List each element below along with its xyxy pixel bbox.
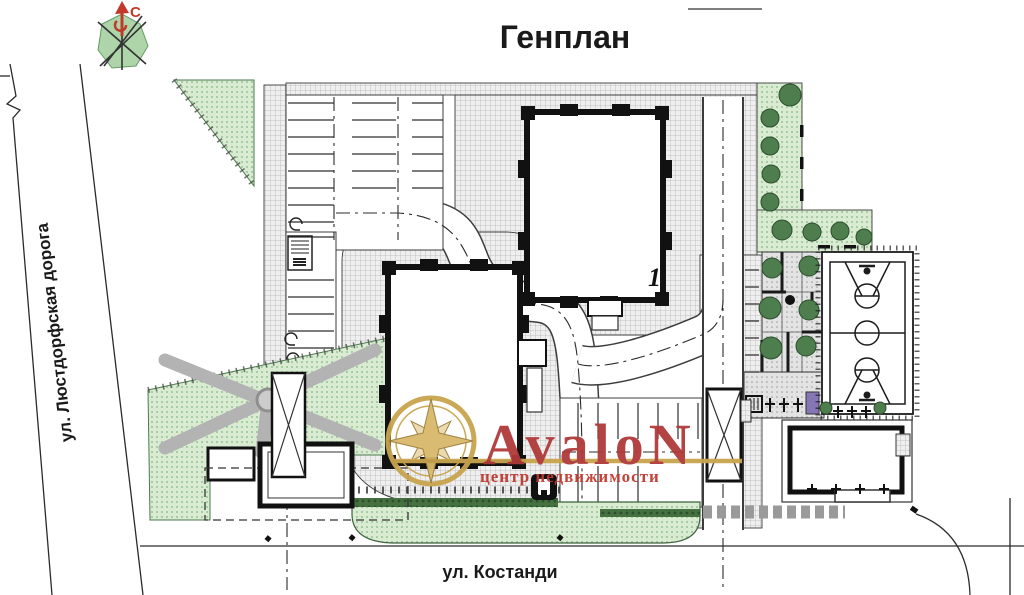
building-1: 1 (518, 104, 672, 330)
road-right-edge (80, 64, 143, 595)
building-1-number: 1 (648, 263, 661, 292)
ramp-structure-west (272, 373, 305, 477)
bush (820, 402, 832, 414)
street-label-left: ул. Люстдорфская дорога (33, 222, 77, 444)
brand-tagline: центр недвижимости (480, 467, 660, 486)
entrance-canopy (592, 316, 618, 330)
north-label: С (130, 4, 141, 21)
basketball-court (818, 248, 917, 418)
boulevard-green (757, 83, 872, 252)
small-building-a (208, 448, 254, 480)
hedge-row (352, 498, 558, 507)
lawn-strip-south (352, 498, 700, 543)
street-label-bottom: ул. Костанди (442, 562, 557, 582)
north-arrow-icon: С (98, 1, 148, 70)
street-corner-curve (916, 514, 970, 595)
entrance-ramp (527, 368, 542, 412)
hedge-row (600, 509, 700, 517)
lawn-triangle (174, 80, 254, 186)
entrance-porch (518, 340, 546, 366)
site-plan-canvas: 1 AvaloN центр недвижимости (0, 0, 1024, 595)
bush (874, 402, 886, 414)
site-plan-page: 1 AvaloN центр недвижимости (0, 0, 1024, 595)
playground-post (785, 295, 795, 305)
terrace-benches (765, 398, 803, 412)
entrance-porch (588, 300, 622, 316)
garage-yard-benches (833, 406, 871, 418)
page-title: Генплан (500, 19, 630, 55)
road-lyustdorfska (0, 64, 143, 595)
